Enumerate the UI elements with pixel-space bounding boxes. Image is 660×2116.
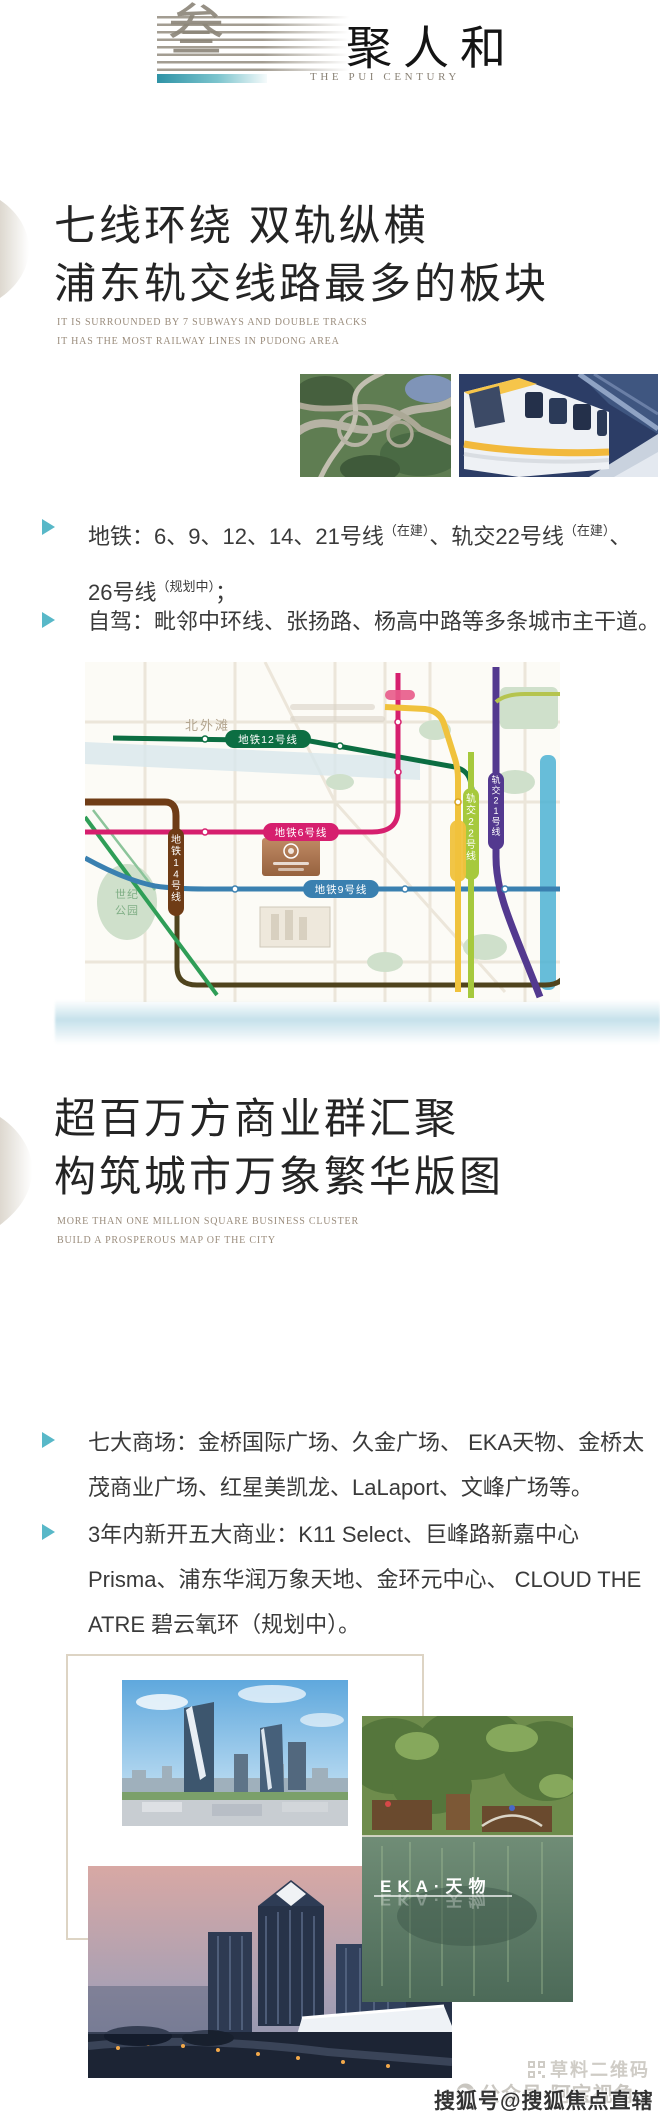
metro-sup1: （在建） (384, 523, 430, 538)
badge-line6: 地铁6号线 (275, 826, 328, 839)
section1-title-line1: 七线环绕 双轨纵横 (54, 192, 429, 253)
section2-title-line2: 构筑城市万象繁华版图 (54, 1143, 504, 1204)
map-area-label: 北外滩 (185, 718, 230, 733)
section1-subtitle-en-2: IT HAS THE MOST RAILWAY LINES IN PUDONG … (57, 336, 340, 347)
eka-park-photo: EKA·天物 EKA·天物 (362, 1716, 573, 2002)
badge-line12: 地铁12号线 (238, 733, 298, 746)
page-subtitle-en: THE PUI CENTURY (310, 71, 460, 83)
page-title: 聚人和 (346, 12, 517, 78)
metro-seg3: 、 (609, 524, 631, 549)
article-page: 叁 聚人和 THE PUI CENTURY 七线环绕 双轨纵横 浦东轨交线路最多… (0, 0, 660, 2116)
skyline-day-photo (122, 1680, 348, 1826)
bullet-triangle-icon (42, 1524, 55, 1540)
metro-seg1: 地铁：6、9、12、14、21号线 (88, 524, 384, 549)
qr-code-icon (528, 2061, 545, 2078)
eka-caption-reflection: EKA·天物 (380, 1890, 492, 1910)
section2-subtitle-en-2: BUILD A PROSPEROUS MAP OF THE CITY (57, 1235, 276, 1246)
metro-sup2: （在建） (564, 523, 610, 538)
logo-chapter-glyph: 叁 (168, 4, 224, 60)
map-bottom-fade (55, 1000, 660, 1044)
bullet-triangle-icon (42, 612, 55, 628)
bullet-triangle-icon (42, 519, 55, 535)
map-waterway-bar (540, 755, 556, 990)
metro-seg2: 、轨交22号线 (429, 524, 563, 549)
map-project-marker (262, 838, 320, 876)
bullet-new-malls: 3年内新开五大商业：K11 Select、巨峰路新嘉中心Prisma、浦东华润万… (42, 1512, 642, 1647)
badge-line9: 地铁9号线 (315, 883, 368, 896)
bullet-triangle-icon (42, 1432, 55, 1448)
metro-sup3: （规划中） (156, 579, 215, 594)
map-small-pink-badge (385, 690, 415, 700)
highway-interchange-photo (300, 374, 451, 477)
page-curl-decoration (0, 198, 32, 300)
bullet-malls: 七大商场：金桥国际广场、久金广场、 EKA天物、金桥太茂商业广场、红星美凯龙、L… (42, 1420, 642, 1510)
bullet-drive-text: 自驾：毗邻中环线、张扬路、杨高中路等多条城市主干道。 (88, 602, 660, 642)
section2-subtitle-en-1: MORE THAN ONE MILLION SQUARE BUSINESS CL… (57, 1216, 359, 1227)
metro-map: 地铁12号线 地铁6号线 地铁9号线 地铁14号线 轨交22号线 轨交21号线 … (85, 662, 560, 1002)
map-park-label-2: 公园 (115, 904, 139, 917)
watermark-sohu: 搜狐号@搜狐焦点直辖站 (434, 2085, 660, 2116)
section2-title-line1: 超百万方商业群汇聚 (54, 1085, 459, 1146)
logo-teal-bar (157, 74, 267, 83)
bullet-drive: 自驾：毗邻中环线、张扬路、杨高中路等多条城市主干道。 (42, 602, 642, 642)
bullet-new-malls-text: 3年内新开五大商业：K11 Select、巨峰路新嘉中心Prisma、浦东华润万… (88, 1512, 660, 1647)
metro-train-photo (459, 374, 658, 477)
bullet-malls-text: 七大商场：金桥国际广场、久金广场、 EKA天物、金桥太茂商业广场、红星美凯龙、L… (88, 1420, 660, 1510)
section1-subtitle-en-1: IT IS SURROUNDED BY 7 SUBWAYS AND DOUBLE… (57, 317, 367, 328)
page-curl-decoration (0, 1115, 36, 1227)
section1-title-line2: 浦东轨交线路最多的板块 (54, 250, 549, 311)
map-park-label-1: 世纪 (115, 888, 139, 901)
